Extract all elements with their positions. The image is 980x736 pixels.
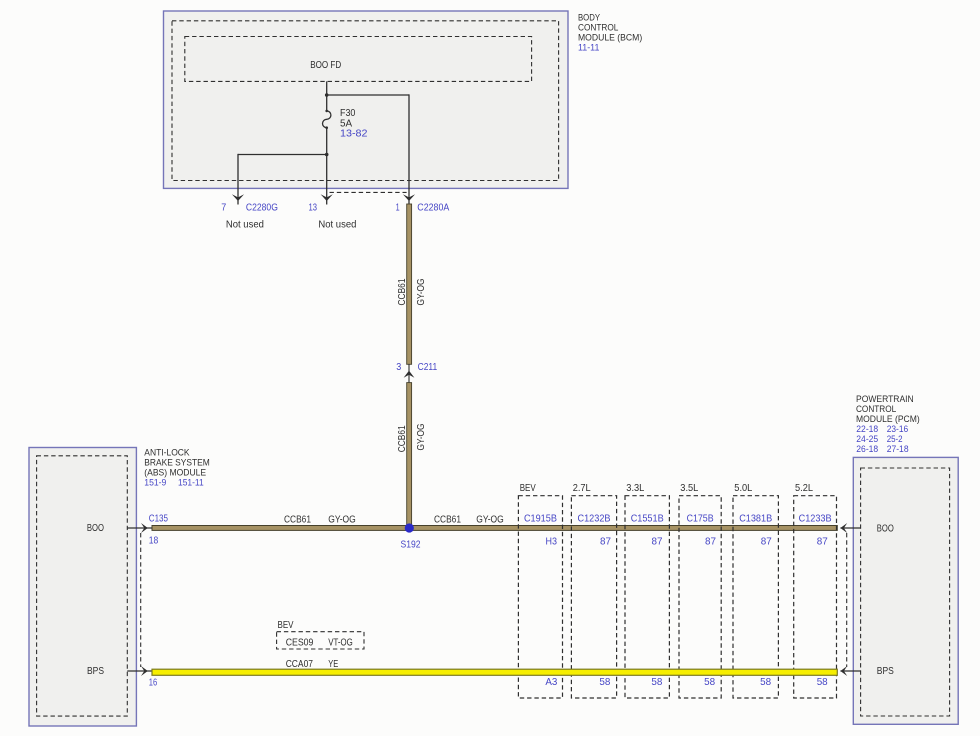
svg-text:1: 1 xyxy=(396,202,400,214)
svg-text:VT-OG: VT-OG xyxy=(328,637,353,649)
svg-text:CCB61: CCB61 xyxy=(396,425,408,452)
svg-text:27-18: 27-18 xyxy=(887,443,909,454)
svg-text:Not used: Not used xyxy=(318,219,356,231)
svg-text:C1233B: C1233B xyxy=(799,513,832,525)
svg-text:BOO: BOO xyxy=(87,522,104,534)
svg-text:BEV: BEV xyxy=(278,619,294,631)
svg-text:C2280G: C2280G xyxy=(246,202,278,214)
svg-text:GY-OG: GY-OG xyxy=(476,514,504,526)
svg-text:3: 3 xyxy=(396,361,401,373)
svg-text:CCB61: CCB61 xyxy=(284,514,311,526)
svg-text:CCB61: CCB61 xyxy=(434,514,461,526)
svg-text:5.2L: 5.2L xyxy=(795,482,813,494)
svg-text:BOO FD: BOO FD xyxy=(310,59,341,71)
svg-text:C1381B: C1381B xyxy=(739,513,772,525)
svg-text:13: 13 xyxy=(309,202,318,214)
svg-text:151-9: 151-9 xyxy=(144,477,166,488)
svg-text:26-18: 26-18 xyxy=(856,443,878,454)
svg-text:58: 58 xyxy=(651,676,662,688)
svg-text:7: 7 xyxy=(221,202,226,214)
svg-text:16: 16 xyxy=(149,677,158,689)
svg-text:13-82: 13-82 xyxy=(340,128,368,140)
svg-text:3.5L: 3.5L xyxy=(680,482,698,494)
svg-text:Not used: Not used xyxy=(226,219,264,231)
svg-text:C135: C135 xyxy=(149,513,168,525)
svg-text:3.3L: 3.3L xyxy=(626,482,644,494)
svg-text:GY-OG: GY-OG xyxy=(415,279,427,306)
svg-text:C1232B: C1232B xyxy=(578,513,611,525)
svg-text:C2280A: C2280A xyxy=(417,202,449,214)
svg-text:S192: S192 xyxy=(401,539,421,551)
svg-text:58: 58 xyxy=(760,676,771,688)
svg-text:58: 58 xyxy=(704,676,715,688)
svg-text:YE: YE xyxy=(328,658,338,670)
svg-text:GY-OG: GY-OG xyxy=(328,514,356,526)
svg-text:87: 87 xyxy=(600,535,611,547)
svg-text:A3: A3 xyxy=(545,676,557,688)
svg-text:11-11: 11-11 xyxy=(578,42,599,53)
svg-text:C211: C211 xyxy=(418,361,438,373)
svg-text:CCB61: CCB61 xyxy=(396,278,408,305)
svg-text:C1551B: C1551B xyxy=(631,513,664,525)
svg-text:2.7L: 2.7L xyxy=(573,482,591,494)
svg-text:5.0L: 5.0L xyxy=(734,482,752,494)
svg-text:18: 18 xyxy=(149,535,159,547)
svg-text:H3: H3 xyxy=(546,535,558,547)
svg-text:BPS: BPS xyxy=(877,665,894,677)
svg-text:C1915B: C1915B xyxy=(524,513,557,525)
svg-text:87: 87 xyxy=(705,535,716,547)
svg-text:C175B: C175B xyxy=(687,513,714,525)
svg-text:CCA07: CCA07 xyxy=(286,658,313,670)
svg-text:BOO: BOO xyxy=(877,522,894,534)
svg-text:87: 87 xyxy=(761,535,772,547)
svg-text:58: 58 xyxy=(817,676,828,688)
svg-text:BPS: BPS xyxy=(87,665,104,677)
svg-text:58: 58 xyxy=(599,676,610,688)
svg-text:151-11: 151-11 xyxy=(178,477,204,488)
svg-text:BEV: BEV xyxy=(520,482,536,494)
svg-text:GY-OG: GY-OG xyxy=(415,424,427,451)
svg-text:87: 87 xyxy=(817,535,828,547)
svg-text:87: 87 xyxy=(652,535,663,547)
svg-text:CES09: CES09 xyxy=(286,637,314,649)
